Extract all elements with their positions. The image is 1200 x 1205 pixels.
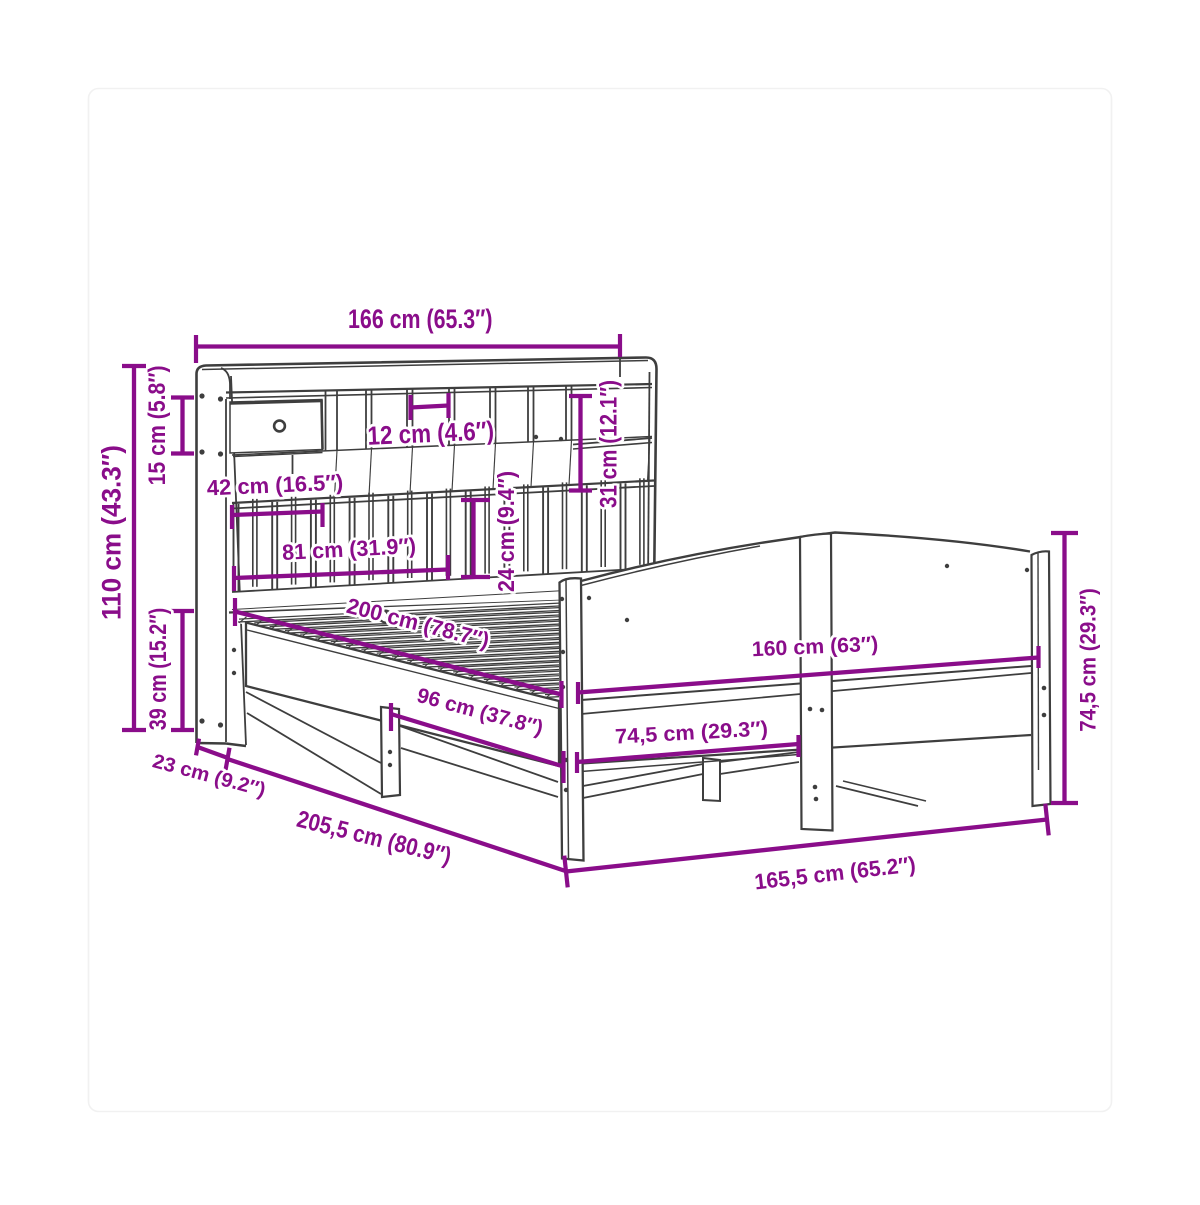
svg-text:110 cm (43.3″): 110 cm (43.3″) bbox=[96, 445, 126, 620]
svg-text:39 cm (15.2″): 39 cm (15.2″) bbox=[145, 608, 172, 731]
svg-text:74,5 cm (29.3″): 74,5 cm (29.3″) bbox=[1076, 588, 1101, 732]
svg-text:166 cm (65.3″): 166 cm (65.3″) bbox=[348, 304, 493, 334]
svg-text:12 cm (4.6″): 12 cm (4.6″) bbox=[367, 415, 495, 450]
svg-text:165,5 cm (65.2″): 165,5 cm (65.2″) bbox=[753, 852, 917, 895]
svg-text:24 cm (9.4″): 24 cm (9.4″) bbox=[493, 471, 519, 592]
svg-text:15 cm (5.8″): 15 cm (5.8″) bbox=[144, 365, 171, 485]
svg-text:23 cm (9.2″): 23 cm (9.2″) bbox=[150, 750, 268, 801]
svg-text:205,5 cm (80.9″): 205,5 cm (80.9″) bbox=[294, 806, 454, 870]
svg-text:31 cm (12.1″): 31 cm (12.1″) bbox=[596, 380, 623, 508]
